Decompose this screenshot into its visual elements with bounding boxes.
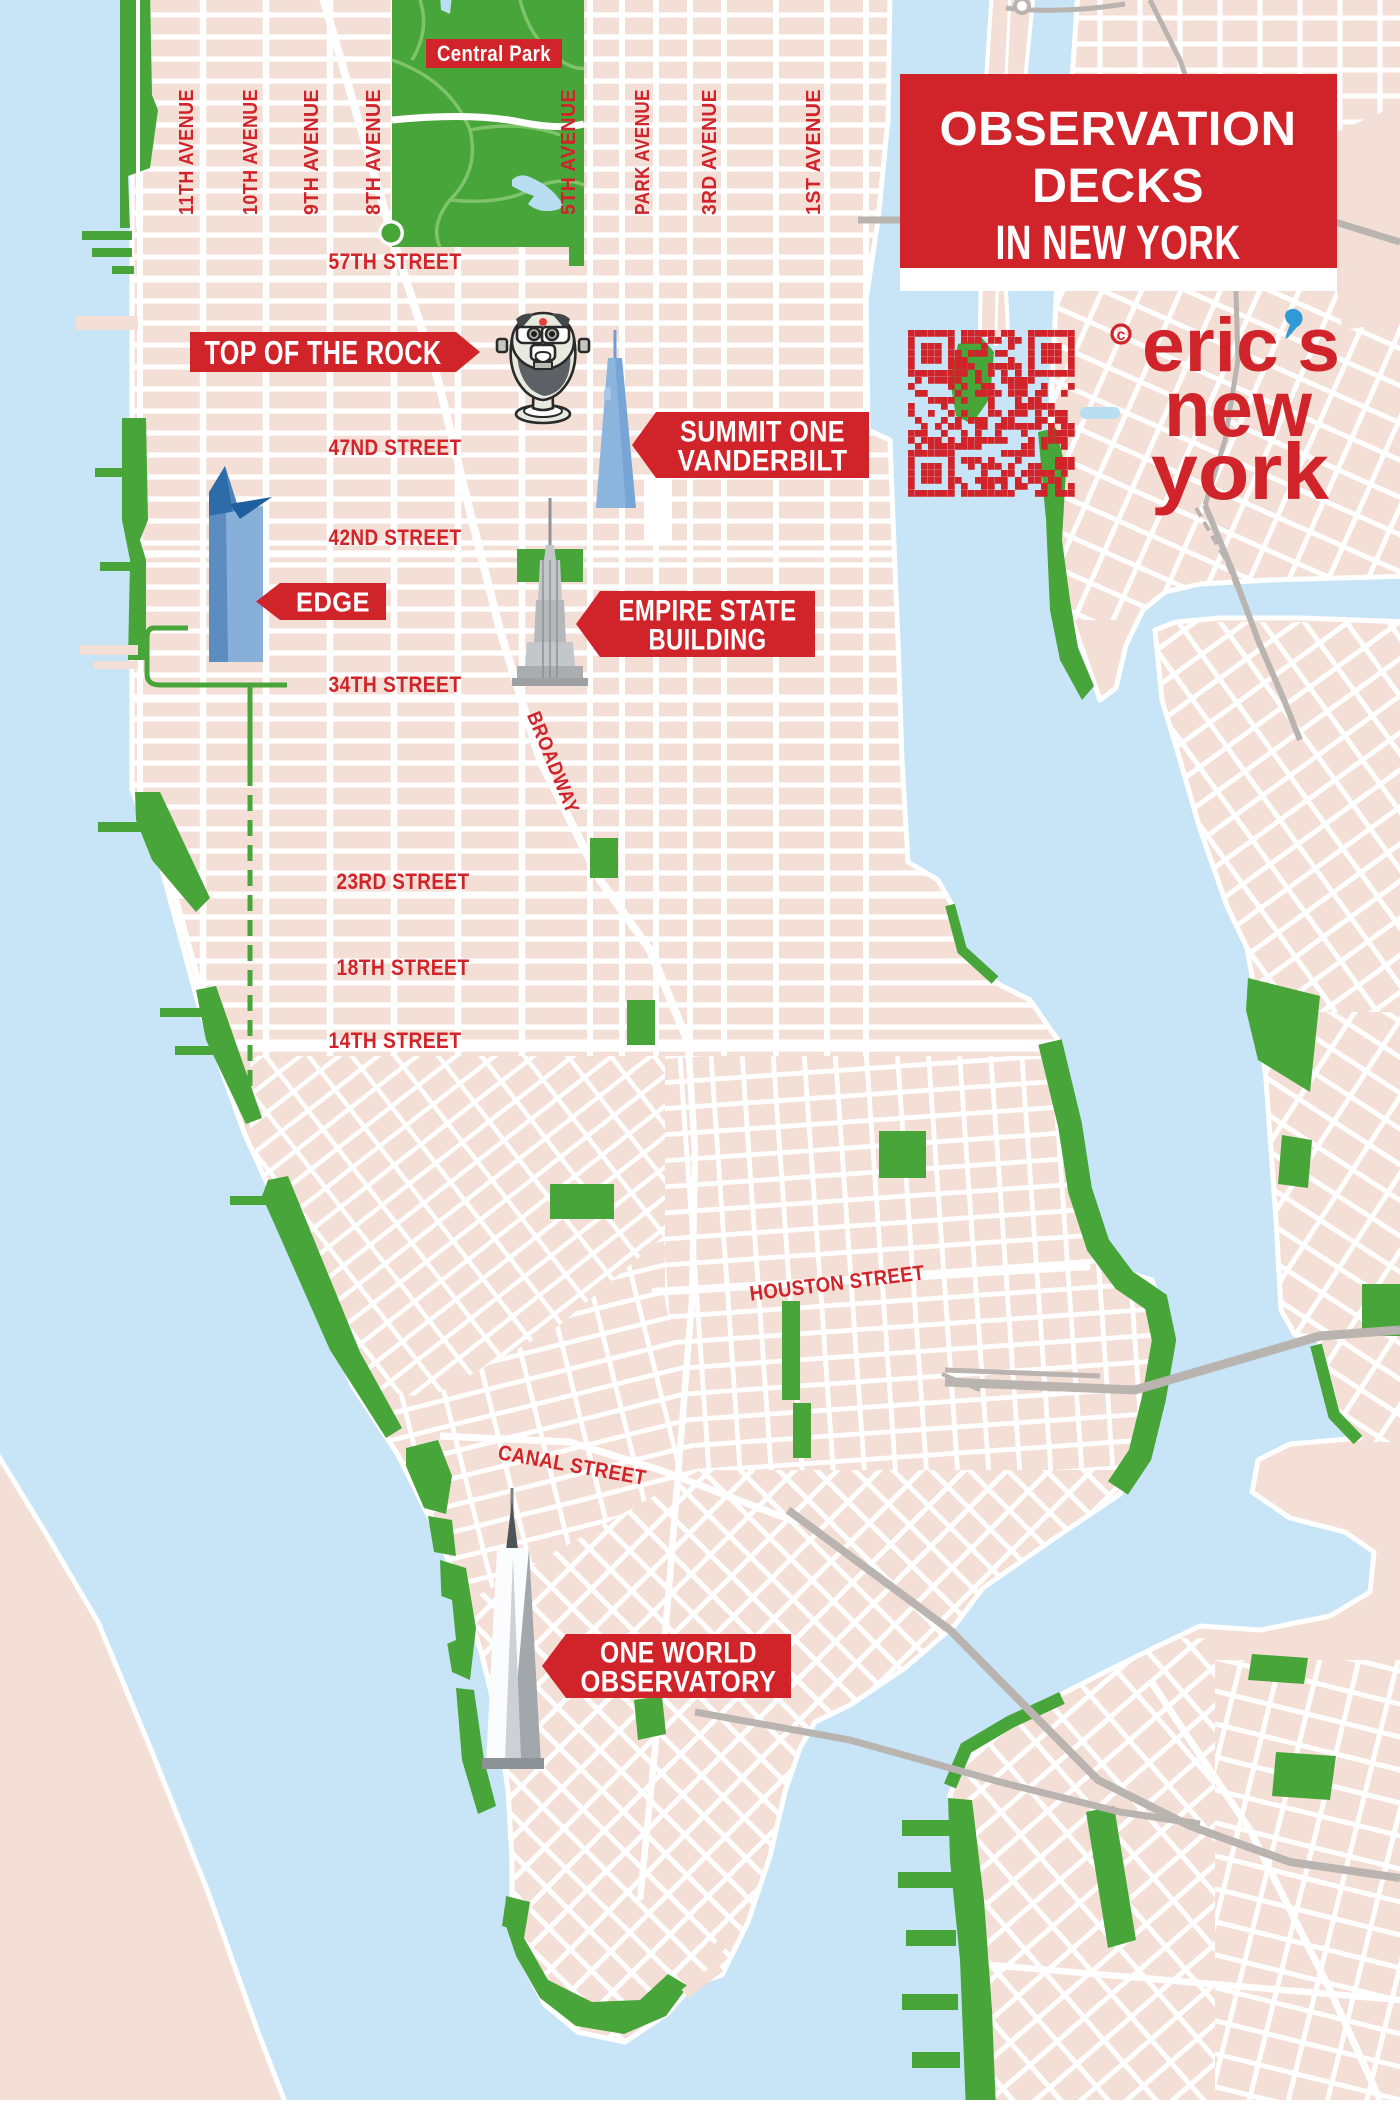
svg-text:york: york bbox=[1151, 427, 1330, 516]
svg-text:34TH STREET: 34TH STREET bbox=[329, 672, 462, 697]
svg-text:23RD STREET: 23RD STREET bbox=[337, 869, 470, 894]
svg-text:10TH AVENUE: 10TH AVENUE bbox=[240, 89, 262, 215]
svg-text:EDGE: EDGE bbox=[296, 587, 370, 618]
svg-text:11TH AVENUE: 11TH AVENUE bbox=[176, 89, 198, 215]
svg-text:IN NEW YORK: IN NEW YORK bbox=[996, 217, 1241, 270]
svg-text:42ND STREET: 42ND STREET bbox=[329, 525, 462, 550]
svg-text:5TH AVENUE: 5TH AVENUE bbox=[558, 89, 580, 215]
svg-text:Central Park: Central Park bbox=[437, 41, 551, 66]
svg-text:47ND STREET: 47ND STREET bbox=[329, 435, 462, 460]
svg-text:14TH STREET: 14TH STREET bbox=[329, 1028, 462, 1053]
svg-text:VANDERBILT: VANDERBILT bbox=[678, 444, 848, 477]
svg-text:c: c bbox=[1117, 327, 1126, 344]
svg-text:8TH AVENUE: 8TH AVENUE bbox=[363, 89, 385, 215]
svg-text:1ST AVENUE: 1ST AVENUE bbox=[803, 89, 825, 215]
svg-text:9TH AVENUE: 9TH AVENUE bbox=[301, 89, 323, 215]
svg-text:DECKS: DECKS bbox=[1032, 160, 1204, 213]
svg-text:PARK AVENUE: PARK AVENUE bbox=[632, 89, 654, 215]
svg-text:BUILDING: BUILDING bbox=[649, 623, 767, 656]
svg-text:18TH STREET: 18TH STREET bbox=[337, 955, 470, 980]
svg-text:57TH STREET: 57TH STREET bbox=[329, 249, 462, 274]
svg-text:OBSERVATORY: OBSERVATORY bbox=[581, 1665, 777, 1698]
svg-text:3RD AVENUE: 3RD AVENUE bbox=[699, 89, 721, 215]
svg-text:TOP OF THE ROCK: TOP OF THE ROCK bbox=[205, 334, 442, 371]
svg-text:OBSERVATION: OBSERVATION bbox=[940, 103, 1297, 156]
